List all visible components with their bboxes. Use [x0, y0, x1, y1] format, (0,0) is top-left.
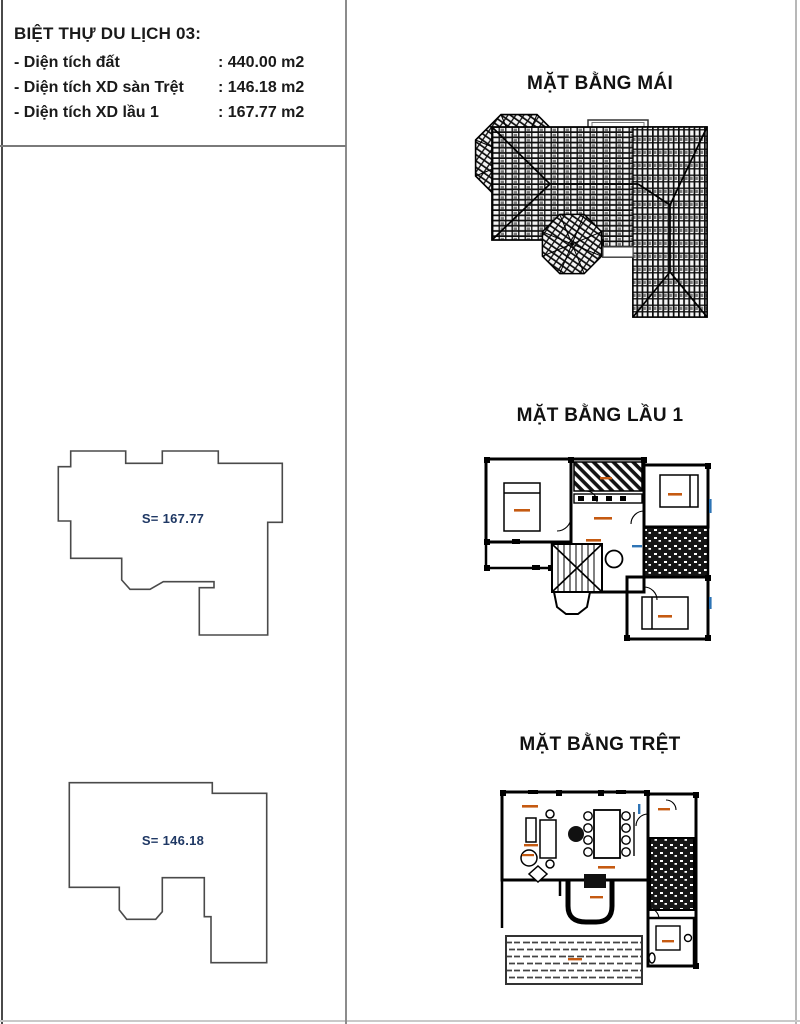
villa-drawing-sheet: BIỆT THỰ DU LỊCH 03: - Diện tích đất : 4… — [0, 0, 800, 1024]
page-left-border — [1, 0, 3, 1024]
kitchen-block — [650, 838, 694, 910]
roof-plan-drawing — [470, 107, 715, 335]
first-floor-footprint-outline — [55, 448, 287, 640]
info-value: : 440.00 m2 — [218, 50, 304, 75]
footprint-polygon — [58, 451, 282, 635]
balcony-hatched — [574, 462, 642, 491]
project-info-panel: BIỆT THỰ DU LỊCH 03: - Diện tích đất : 4… — [14, 24, 334, 125]
roof-plan-title: MẶT BẰNG MÁI — [440, 73, 760, 95]
room-label-marks-blue — [638, 804, 640, 814]
info-label: - Diện tích XD sàn Trệt — [14, 75, 218, 100]
round-table — [606, 551, 623, 568]
info-label: - Diện tích XD lầu 1 — [14, 100, 218, 125]
column-divider-line — [345, 0, 347, 1024]
bay-window — [554, 592, 590, 614]
info-box-underline — [0, 145, 346, 147]
stair-landing — [584, 874, 606, 888]
turret-roof-small — [542, 214, 601, 273]
info-value: : 146.18 m2 — [218, 75, 304, 100]
dining-table — [584, 810, 634, 858]
info-label: - Diện tích đất — [14, 50, 218, 75]
info-value: : 167.77 m2 — [218, 100, 304, 125]
ground-floor-footprint-outline — [64, 780, 274, 968]
page-bottom-border — [0, 1020, 800, 1022]
project-title: BIỆT THỰ DU LỊCH 03: — [14, 24, 334, 44]
first-floor-plan-drawing — [482, 447, 714, 642]
info-row-first-floor-area: - Diện tích XD lầu 1 : 167.77 m2 — [14, 100, 334, 125]
stairs — [552, 544, 602, 592]
main-roof-body — [492, 127, 707, 317]
first-floor-plan-title: MẶT BẰNG LẦU 1 — [440, 405, 760, 427]
bathroom-fixtures — [649, 926, 692, 963]
cabinet-row — [574, 494, 642, 503]
feature-circle — [568, 826, 584, 842]
ground-floor-plan-title: MẶT BẰNG TRỆT — [440, 734, 760, 756]
ground-floor-plan-drawing — [498, 778, 700, 990]
page-right-border — [795, 0, 797, 1024]
bathroom-block — [644, 527, 708, 577]
info-row-ground-floor-area: - Diện tích XD sàn Trệt : 146.18 m2 — [14, 75, 334, 100]
info-row-land-area: - Diện tích đất : 440.00 m2 — [14, 50, 334, 75]
flat-roof-connector — [603, 247, 633, 257]
footprint-polygon — [69, 783, 266, 963]
